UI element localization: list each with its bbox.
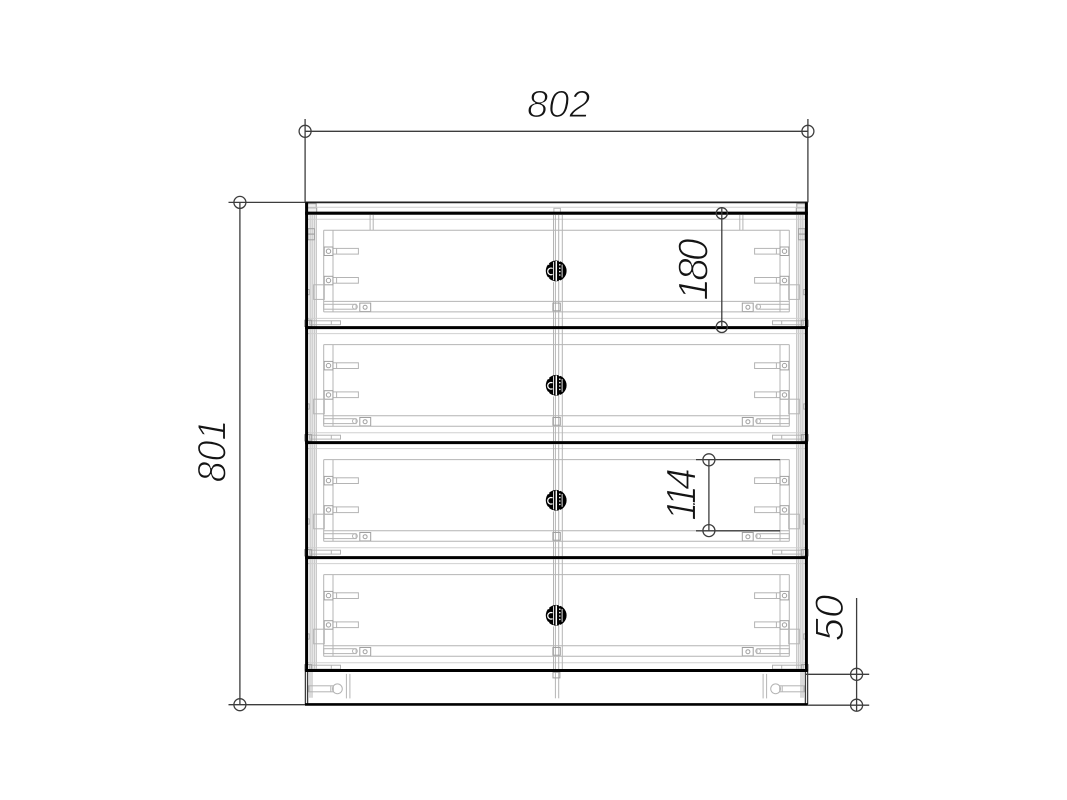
svg-text:114: 114 <box>657 470 704 521</box>
svg-text:180: 180 <box>670 238 717 301</box>
svg-text:802: 802 <box>527 84 590 126</box>
svg-text:50: 50 <box>808 595 852 642</box>
svg-text:801: 801 <box>191 420 235 483</box>
